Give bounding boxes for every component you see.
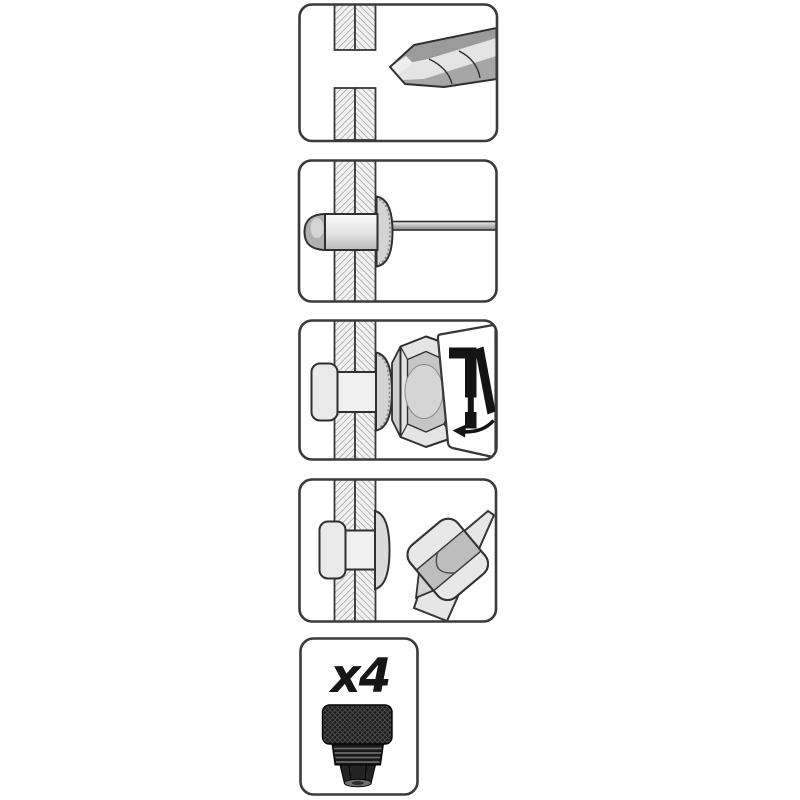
rivet-body bbox=[325, 214, 378, 250]
step-5-panel: x4 bbox=[301, 639, 418, 795]
mandrel-rod bbox=[391, 222, 497, 231]
rivet-bulge bbox=[312, 364, 338, 421]
knurled-head bbox=[323, 705, 393, 744]
quantity-label: x4 bbox=[328, 649, 389, 704]
step-1-panel bbox=[300, 5, 498, 142]
instruction-diagram: x4 bbox=[0, 0, 800, 800]
step-4-panel bbox=[300, 480, 497, 622]
squeeze-tool-callout bbox=[438, 325, 496, 456]
step-3-panel bbox=[300, 321, 497, 460]
step-2-panel bbox=[299, 161, 497, 302]
rivet-bulge bbox=[320, 522, 346, 579]
instruction-sheet: x4 bbox=[0, 0, 800, 800]
